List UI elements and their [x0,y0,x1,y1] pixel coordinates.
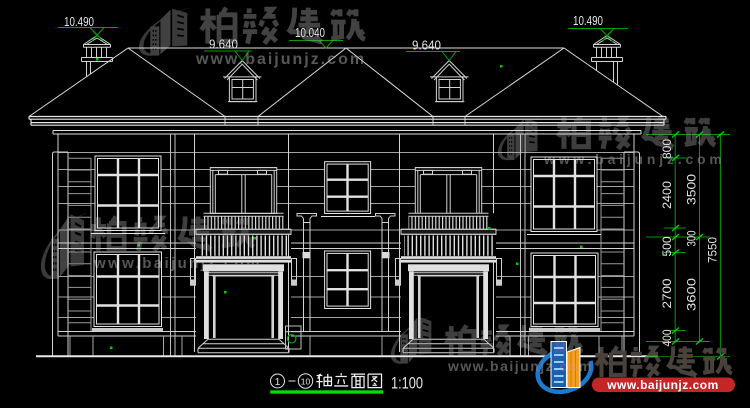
svg-text:www.baijunjz.com: www.baijunjz.com [195,51,366,68]
svg-text:www.baijunjz.com: www.baijunjz.com [93,255,262,272]
svg-text:300: 300 [687,231,699,247]
svg-text:2700: 2700 [662,279,674,309]
svg-text:500: 500 [662,237,674,257]
svg-text:7550: 7550 [708,237,720,263]
svg-text:1:100: 1:100 [391,374,423,393]
svg-text:www.baijunjz.com: www.baijunjz.com [447,358,593,374]
svg-text:400: 400 [662,330,674,347]
svg-text:9.640: 9.640 [412,38,441,53]
svg-text:www.baijunjz.com: www.baijunjz.com [606,378,719,392]
svg-text:10.490: 10.490 [64,14,94,29]
svg-text:10: 10 [301,377,311,387]
svg-text:www.baijunjz.com: www.baijunjz.com [543,151,726,167]
svg-text:1: 1 [275,377,281,388]
svg-text:3500: 3500 [687,174,699,205]
svg-text:10.490: 10.490 [573,13,603,28]
svg-text:2400: 2400 [662,181,674,209]
svg-text:3600: 3600 [687,278,699,311]
